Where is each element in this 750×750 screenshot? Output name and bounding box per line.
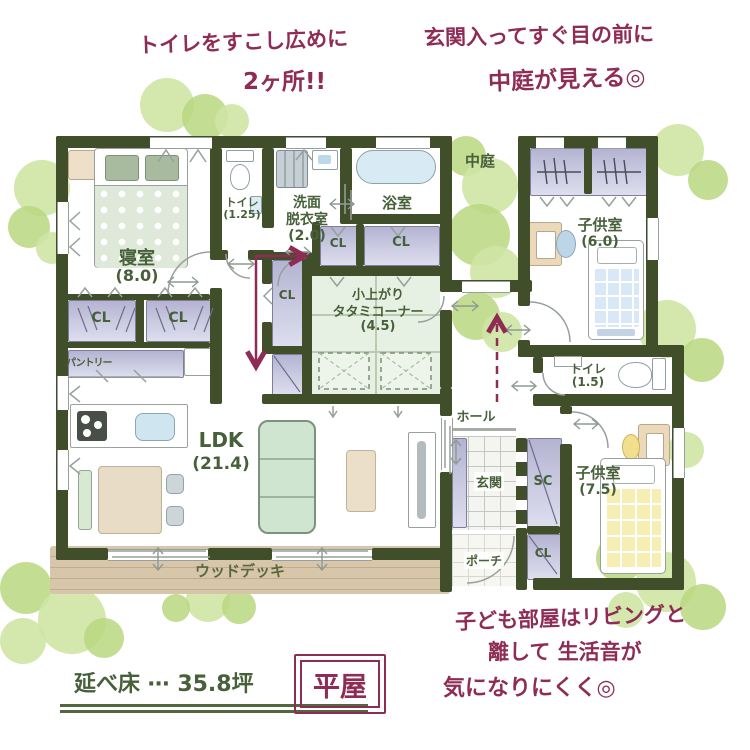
tatami-grid-line [312, 351, 440, 353]
chair-icon [556, 230, 576, 258]
window [673, 428, 685, 478]
foliage-blob [162, 594, 190, 622]
ldk-label: LDK [199, 428, 244, 452]
tv-board-icon [408, 432, 436, 528]
kids-note-line1: 子ども部屋はリビングと [455, 598, 687, 636]
burner [81, 415, 90, 424]
bathroom-label: 浴室 [382, 192, 412, 213]
wall [262, 148, 274, 228]
dining-chair-icon [166, 474, 184, 494]
wall [516, 528, 527, 590]
burner [83, 429, 91, 437]
washroom-size: (2.0) [288, 228, 326, 244]
foliage-blob [215, 104, 249, 138]
wall [302, 266, 452, 276]
wall [262, 394, 452, 404]
house-type-badge: 平屋 [294, 654, 386, 714]
wall [533, 357, 543, 373]
window [598, 137, 626, 149]
bed-foot [597, 329, 635, 336]
ldk-size: (21.4) [192, 454, 249, 474]
toilet-note-line1: トイレをすこし広めに [138, 22, 349, 59]
kids-room1-label: 子供室 [577, 214, 622, 235]
wall [356, 224, 364, 266]
blanket [605, 487, 661, 569]
kitchen-counter-icon [70, 404, 188, 448]
wall [440, 388, 452, 416]
wall [584, 148, 592, 194]
closet-label: CL [330, 236, 346, 250]
wall [262, 346, 312, 354]
courtyard-label: 中庭 [465, 150, 495, 171]
chair-icon [622, 434, 640, 460]
basin-bowl [318, 155, 331, 164]
dining-chair-icon [166, 506, 184, 526]
wall [262, 252, 302, 260]
toilet-icon [226, 150, 254, 162]
kids-note-line2: 離して 生活音が [488, 636, 642, 666]
wall [136, 296, 144, 344]
toilet-icon [230, 164, 250, 190]
coffee-table-icon [346, 450, 376, 512]
kids-note-line3: 気になりにくく◎ [443, 670, 616, 702]
paper [536, 231, 556, 259]
floor-area-label: 延べ床 ⋯ 35.8坪 [74, 666, 254, 698]
paper [646, 433, 664, 459]
wall [533, 578, 684, 590]
closet-label: CL [279, 288, 295, 302]
entrance-note-line1: 玄関入ってすぐ目の前に [424, 18, 654, 52]
dining-bench-icon [78, 470, 92, 530]
sliding-door-gap [441, 418, 453, 470]
pillow-icon [145, 155, 179, 181]
window [57, 376, 69, 410]
toilet2-size: (1.5) [572, 375, 604, 389]
stove-icon [77, 411, 107, 441]
toilet-note-line2: 2ヶ所!! [243, 62, 326, 96]
washroom-label-line2: 脱衣室 [286, 209, 328, 229]
window [647, 218, 659, 260]
wall [210, 250, 228, 260]
kids-room1-size: (6.0) [581, 234, 619, 250]
closet-label: CL [535, 546, 551, 560]
wall [340, 148, 352, 222]
sink-icon [135, 413, 175, 441]
foliage-blob [680, 584, 726, 630]
foliage-blob [222, 590, 256, 624]
closet-label: CL [91, 310, 110, 326]
kids-room2-size: (7.5) [579, 482, 617, 498]
hall-label: ホール [456, 406, 495, 425]
floor-plan-canvas: 寝室 (8.0) トイレ (1.25) 洗面 脱衣室 (2.0) 浴室 中庭 子… [0, 0, 750, 750]
entrance-label: 玄関 [474, 472, 504, 491]
tv-icon [417, 441, 426, 519]
pillow-icon [105, 155, 139, 181]
tatami-label-line2: タタミコーナー [332, 301, 423, 320]
toilet-tank [652, 358, 666, 390]
closet-label: CL [392, 235, 410, 250]
bedroom-size: (8.0) [116, 266, 159, 285]
entrance-note-line2: 中庭が見える◎ [487, 57, 645, 96]
window [536, 137, 564, 149]
window [286, 137, 326, 149]
sliding-door-gap [272, 549, 372, 561]
wall [56, 136, 68, 560]
wall [340, 214, 452, 224]
shoe-closet-label: SC [534, 474, 553, 489]
blanket [593, 267, 639, 327]
linen-closet [272, 354, 304, 396]
wall [440, 472, 452, 592]
window [150, 137, 212, 149]
toilet-icon [618, 362, 652, 388]
wall [440, 310, 452, 388]
wall [210, 288, 222, 404]
closet-label: CL [168, 310, 187, 326]
foliage-blob [688, 160, 728, 200]
wall [516, 438, 527, 528]
washer-icon [276, 150, 308, 188]
window [376, 137, 430, 149]
burner [94, 421, 102, 429]
foliage-blob [482, 312, 522, 352]
pantry-label: パントリー [66, 354, 112, 369]
corridor-closet [272, 260, 304, 348]
house-type-label: 平屋 [296, 656, 384, 712]
wall [560, 406, 572, 414]
sofa-icon [258, 420, 316, 534]
foliage-blob [0, 618, 46, 664]
porch-label: ポーチ [464, 552, 504, 569]
wall [210, 148, 222, 252]
wall [56, 548, 108, 560]
window [462, 281, 510, 293]
window [57, 202, 69, 254]
kids-room2-label: 子供室 [575, 462, 620, 483]
wall [527, 526, 560, 534]
dining-table-icon [98, 466, 162, 534]
wall [208, 548, 272, 560]
foliage-blob [84, 618, 124, 658]
wash-basin-icon [312, 150, 338, 170]
tatami-size: (4.5) [361, 319, 396, 334]
wall [518, 345, 684, 357]
wall [518, 136, 530, 306]
foliage-blob [680, 338, 724, 382]
bathtub-icon [356, 150, 436, 184]
wall [533, 394, 684, 406]
wall [560, 444, 572, 590]
wood-deck-label: ウッドデッキ [195, 560, 285, 581]
sliding-door-gap [108, 549, 208, 561]
window [57, 450, 69, 490]
toilet1-size: (1.25) [223, 208, 260, 221]
shoe-cabinet-icon [452, 438, 467, 528]
single-bed-icon [588, 240, 644, 340]
entrance-step-line [452, 428, 516, 431]
wall [302, 252, 312, 404]
